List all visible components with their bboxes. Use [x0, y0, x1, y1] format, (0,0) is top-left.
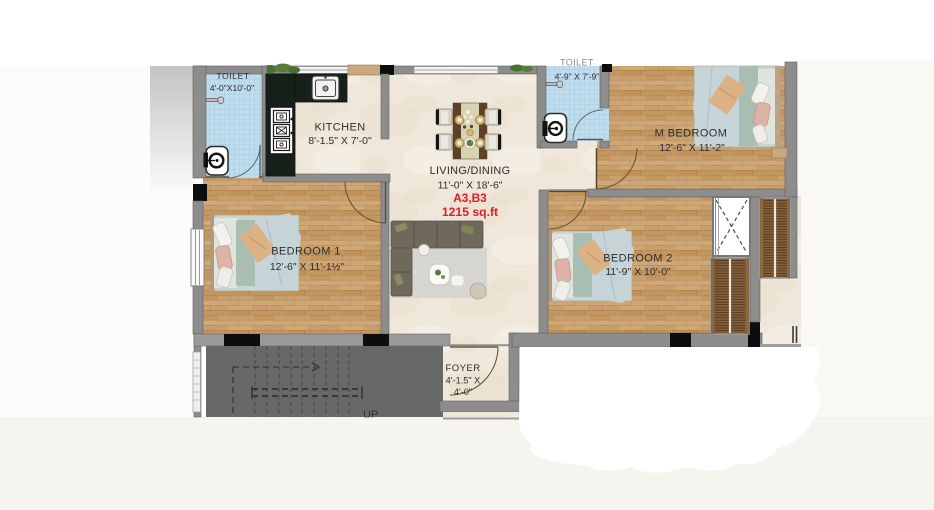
- svg-text:4'-0": 4'-0": [454, 387, 472, 397]
- svg-text:4'-0"X10'-0": 4'-0"X10'-0": [210, 83, 254, 93]
- svg-text:A3,B3: A3,B3: [453, 191, 487, 205]
- svg-text:FOYER: FOYER: [445, 363, 480, 374]
- svg-text:1215 sq.ft: 1215 sq.ft: [442, 205, 498, 219]
- svg-text:4'-1.5" X: 4'-1.5" X: [446, 376, 481, 386]
- svg-text:11'-9" X 10'-0": 11'-9" X 10'-0": [605, 266, 671, 278]
- svg-text:12'-6" X 11'-1½": 12'-6" X 11'-1½": [270, 261, 345, 273]
- svg-text:KITCHEN: KITCHEN: [314, 122, 365, 134]
- svg-text:12'-6" X 11'-2": 12'-6" X 11'-2": [659, 142, 725, 154]
- svg-text:8'-1.5" X 7'-0": 8'-1.5" X 7'-0": [308, 135, 372, 147]
- svg-text:BEDROOM 2: BEDROOM 2: [603, 253, 673, 265]
- svg-text:BEDROOM 1: BEDROOM 1: [271, 246, 341, 258]
- svg-text:11'-0" X 18'-6": 11'-0" X 18'-6": [438, 181, 503, 192]
- svg-text:LIVING/DINING: LIVING/DINING: [430, 165, 511, 177]
- svg-text:TOILET: TOILET: [560, 58, 594, 68]
- svg-text:M BEDROOM: M BEDROOM: [655, 128, 728, 140]
- svg-text:TOILET: TOILET: [216, 71, 249, 81]
- svg-text:4'-9" X 7'-9": 4'-9" X 7'-9": [555, 72, 600, 82]
